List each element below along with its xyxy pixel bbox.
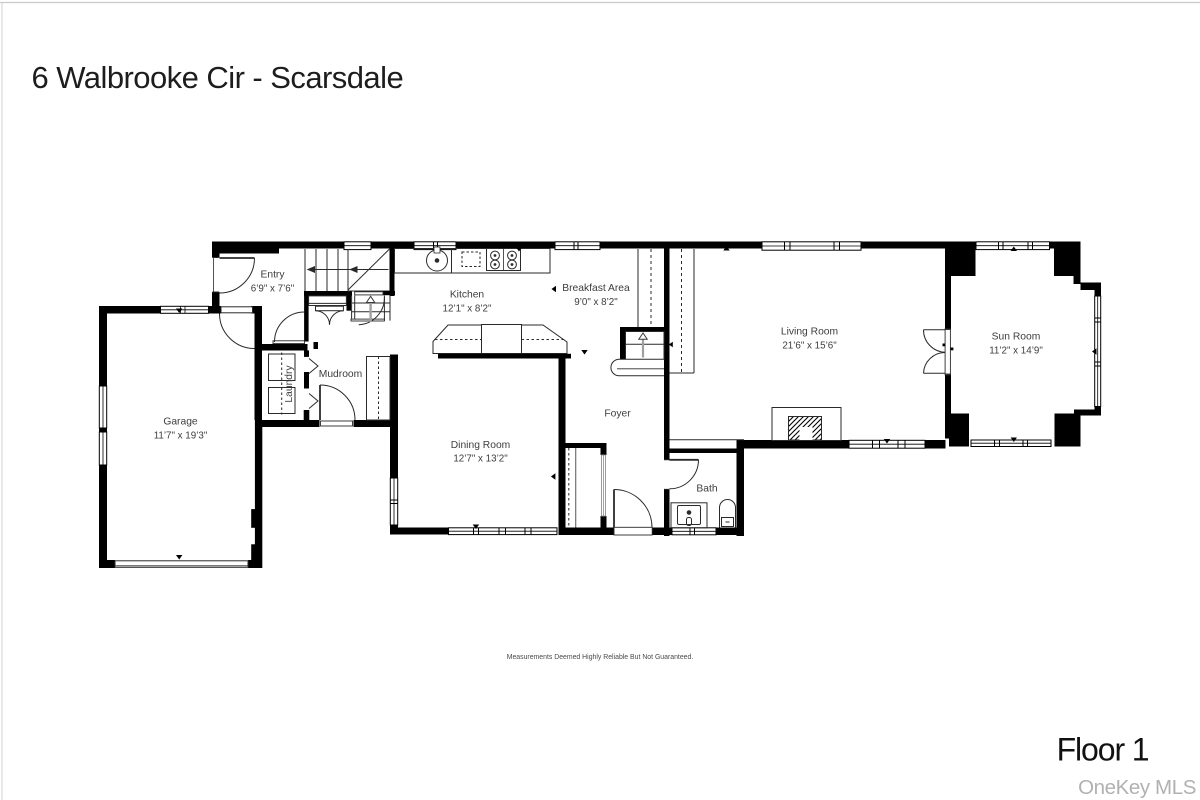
- svg-text:Foyer: Foyer: [604, 409, 631, 420]
- svg-text:Laundry: Laundry: [284, 365, 295, 403]
- svg-text:21’6" x 15’6": 21’6" x 15’6": [782, 341, 837, 352]
- svg-text:9’0" x 8’2": 9’0" x 8’2": [574, 297, 618, 308]
- svg-text:12’1" x 8’2": 12’1" x 8’2": [443, 304, 492, 315]
- svg-text:Living Room: Living Room: [781, 327, 838, 338]
- svg-text:12’7" x 13’2": 12’7" x 13’2": [453, 454, 508, 465]
- svg-text:Garage: Garage: [163, 417, 198, 428]
- svg-text:Floor 1: Floor 1: [1057, 732, 1149, 768]
- svg-text:6 Walbrooke Cir - Scarsdale: 6 Walbrooke Cir - Scarsdale: [32, 60, 404, 95]
- svg-text:11’7" x 19’3": 11’7" x 19’3": [154, 431, 208, 442]
- svg-text:Sun Room: Sun Room: [992, 332, 1041, 343]
- svg-text:Breakfast Area: Breakfast Area: [562, 283, 630, 294]
- svg-text:Dining Room: Dining Room: [451, 440, 511, 451]
- svg-text:OneKey MLS: OneKey MLS: [1078, 776, 1196, 799]
- svg-text:Kitchen: Kitchen: [450, 290, 485, 301]
- svg-text:Measurements Deemed Highly Rel: Measurements Deemed Highly Reliable But …: [507, 654, 694, 661]
- svg-text:Bath: Bath: [696, 484, 717, 495]
- svg-text:Mudroom: Mudroom: [319, 369, 363, 380]
- svg-text:Entry: Entry: [260, 270, 285, 281]
- svg-text:11’2" x 14’9": 11’2" x 14’9": [989, 346, 1043, 357]
- svg-text:6’9" x 7’6": 6’9" x 7’6": [251, 284, 295, 295]
